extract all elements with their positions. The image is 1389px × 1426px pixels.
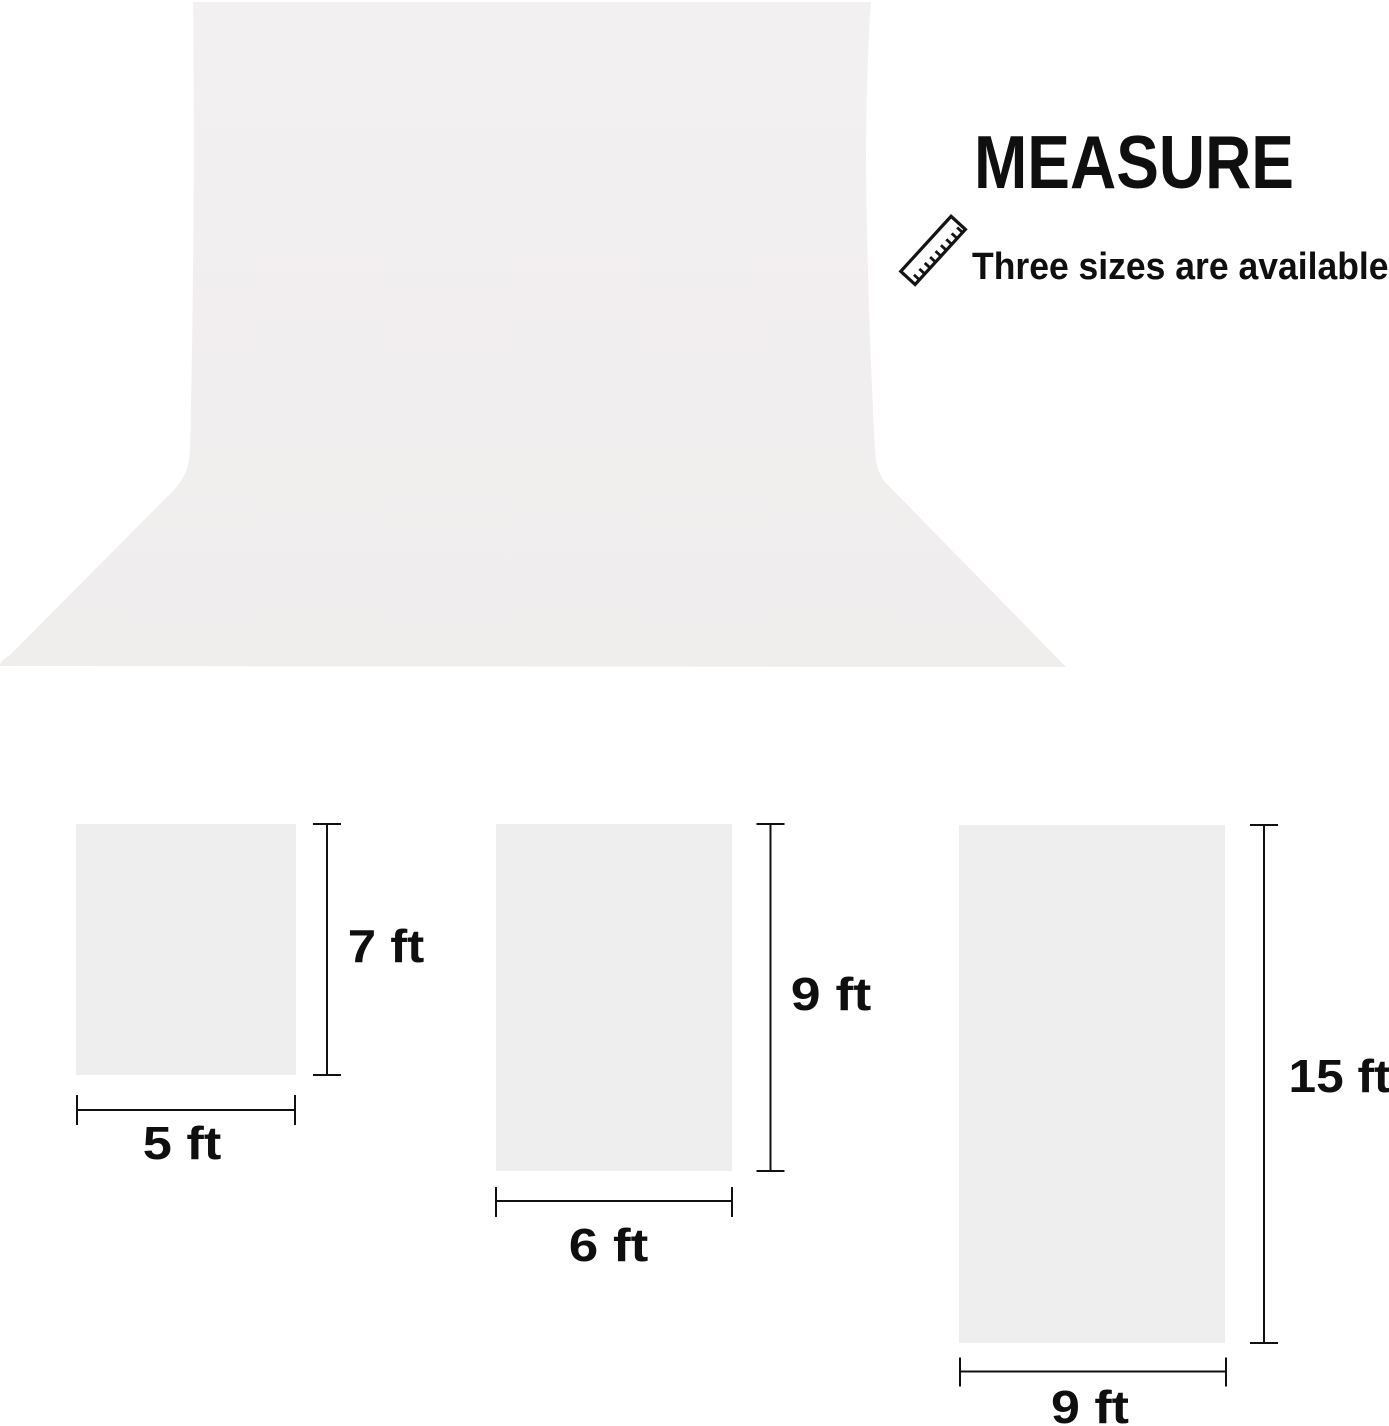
svg-text:5 ft: 5 ft xyxy=(143,1117,222,1169)
svg-text:9 ft: 9 ft xyxy=(791,968,872,1020)
svg-text:Three sizes are available: Three sizes are available xyxy=(972,245,1389,287)
svg-text:15 ft: 15 ft xyxy=(1289,1050,1389,1102)
svg-text:9 ft: 9 ft xyxy=(1051,1381,1129,1426)
svg-text:MEASURE: MEASURE xyxy=(974,120,1294,204)
svg-text:7 ft: 7 ft xyxy=(348,920,425,972)
svg-text:6 ft: 6 ft xyxy=(569,1219,649,1271)
